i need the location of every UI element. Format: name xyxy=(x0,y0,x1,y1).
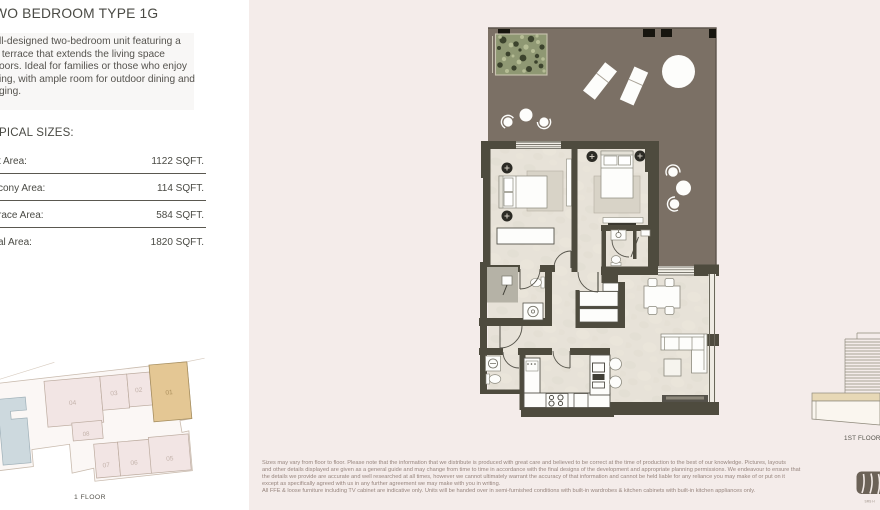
svg-text:SRS H: SRS H xyxy=(865,500,876,504)
